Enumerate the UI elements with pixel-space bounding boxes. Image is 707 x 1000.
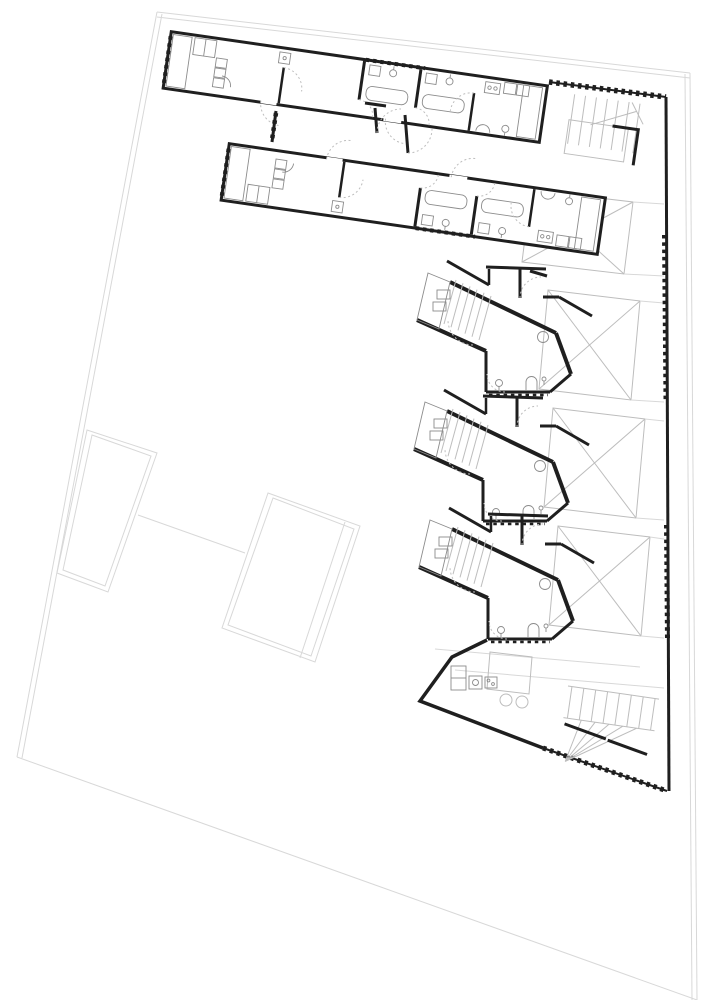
light-well (549, 526, 664, 638)
door-swing (408, 129, 432, 153)
right-wall (666, 97, 669, 791)
light-well (544, 408, 664, 520)
light-well-tie (624, 274, 664, 276)
parcel-connector-line (138, 515, 245, 553)
parcel-outline (222, 493, 360, 662)
duplex-units (414, 261, 594, 642)
chair (516, 696, 528, 708)
bottom-zone (420, 640, 667, 791)
apartment-bar-1 (160, 32, 547, 163)
kitchen-sink (469, 676, 482, 689)
neighbour-parcels (57, 430, 360, 662)
apartment-bar-2 (221, 123, 608, 254)
top-right-zone (549, 82, 669, 791)
light-well-tie (650, 537, 664, 539)
floor-plan-page (0, 0, 707, 1000)
floor-plan-drawing (0, 0, 707, 1000)
apartment-bars (160, 32, 608, 255)
light-well-tie (640, 301, 664, 303)
site-boundary-line (17, 12, 157, 757)
staircase-top (564, 94, 646, 166)
parcel-divider (300, 522, 345, 658)
site-boundary (17, 12, 697, 1000)
window-hatch-right (665, 235, 667, 400)
chair (500, 694, 512, 706)
light-well-diagonal (544, 419, 645, 507)
stair-rail (606, 740, 648, 754)
duplex-unit-1 (417, 261, 592, 395)
site-boundary-line (22, 14, 162, 758)
duplex-unit-2 (414, 390, 589, 524)
duplex-unit-3 (419, 508, 594, 642)
parcel-outline-inner (63, 435, 151, 586)
parcel-outline-inner (228, 498, 354, 656)
light-well-tie (645, 419, 664, 421)
kitchen (451, 652, 532, 708)
light-well-diagonal (549, 537, 650, 625)
light-well-tie (641, 636, 664, 638)
light-well-tie (636, 518, 664, 520)
light-well-tie (631, 400, 664, 402)
parcel-outline (57, 430, 157, 592)
site-boundary-line (17, 757, 697, 1000)
light-well-tie (633, 202, 664, 204)
